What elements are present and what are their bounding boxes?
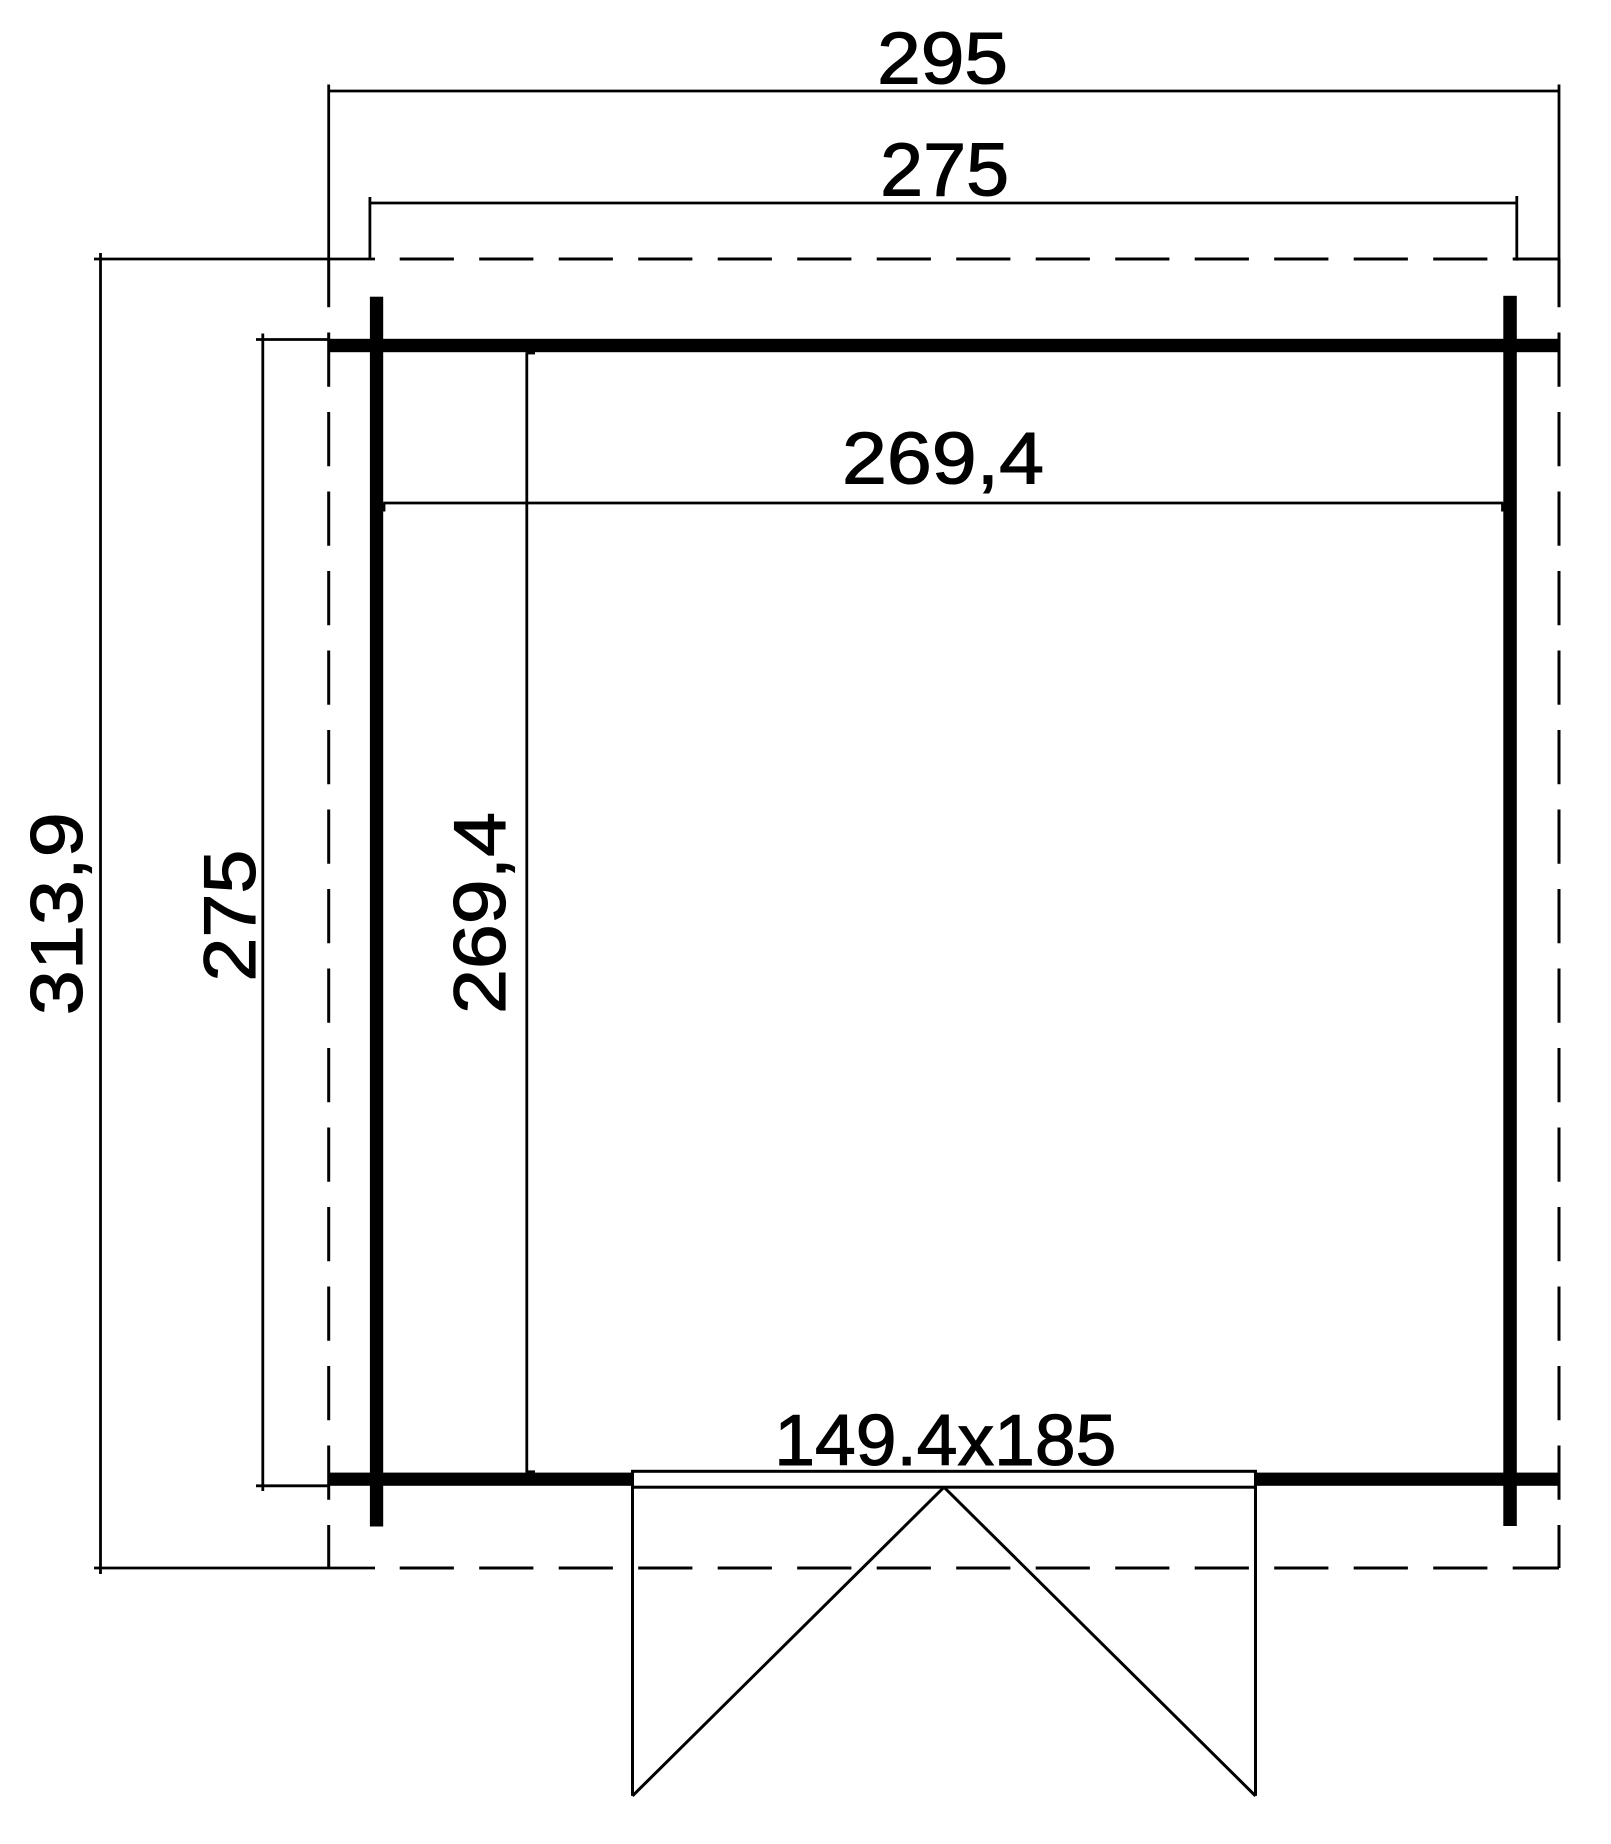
svg-text:269,4: 269,4 [440,812,521,1014]
svg-text:275: 275 [190,850,271,982]
svg-text:149.4x185: 149.4x185 [774,1401,1116,1481]
svg-text:275: 275 [880,128,1009,212]
svg-text:295: 295 [877,18,1008,99]
svg-text:313,9: 313,9 [17,812,98,1015]
svg-text:269,4: 269,4 [842,419,1044,500]
